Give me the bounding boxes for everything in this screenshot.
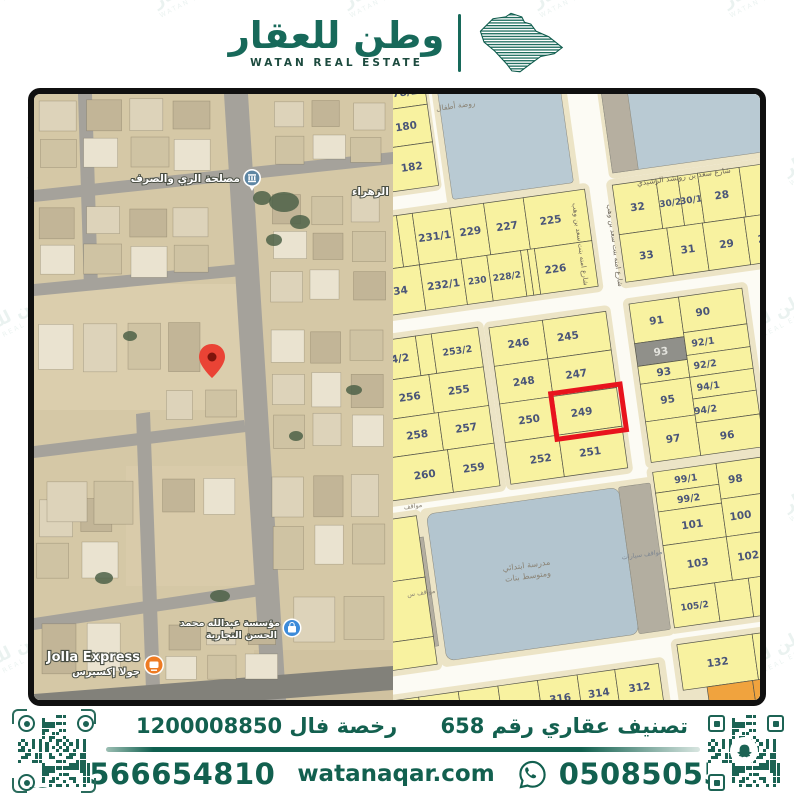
- parcel-plot: [715, 578, 754, 621]
- brand-english: WATAN REAL ESTATE: [229, 57, 445, 69]
- plot-number: 98: [727, 472, 743, 486]
- plot-number: 27: [757, 232, 760, 246]
- plot-number: 96: [719, 429, 735, 443]
- plot-number: 97: [665, 432, 681, 446]
- website: watanaqar.com: [297, 761, 494, 787]
- district-label: الزهراء: [352, 186, 389, 198]
- poi-jolla-en: Jolla Express: [46, 650, 141, 665]
- qr-code: [18, 715, 90, 787]
- maps-frame: مصلحة الري والصرف الزهراء مؤسسة عبدالله …: [28, 88, 766, 706]
- plot-number: 314: [587, 686, 610, 700]
- saudi-map-icon: [475, 11, 565, 75]
- footer: تصنيف عقاري رقم 658 رخصة فال 1200008850 …: [0, 706, 794, 793]
- restaurant-icon: [144, 655, 164, 675]
- plot-number: 90: [695, 305, 711, 319]
- license-label: رخصة فال 1200008850: [136, 714, 397, 738]
- flyer-page: وطن للعقارWATAN REAL ESTATEوطن للعقارWAT…: [0, 0, 794, 793]
- brand-arabic: وطن للعقار: [229, 17, 445, 56]
- qr-code: [708, 715, 780, 787]
- phone-left: 0566654810: [69, 757, 276, 791]
- whatsapp-icon: [517, 759, 548, 790]
- shopping-bag-icon: [283, 619, 302, 638]
- brand-text: وطن للعقار WATAN REAL ESTATE: [229, 17, 445, 69]
- watermark-text: وطن للعقارWATAN REAL ESTATE: [779, 453, 794, 524]
- parcel-map: 178/21801823231/1229227225234232/1230228…: [393, 94, 760, 700]
- brand-divider: [458, 14, 461, 72]
- poi-establishment-line1: مؤسسة عبدالله محمد: [180, 618, 280, 629]
- footer-divider: [106, 747, 700, 752]
- plot-number: 29: [719, 237, 735, 251]
- plot-number: 95: [660, 393, 676, 407]
- poi-jolla-ar: جولا إكسبرس: [72, 667, 140, 678]
- snapchat-ghost-icon: [730, 737, 758, 765]
- plot-number: 93: [653, 345, 669, 359]
- watermark-text: وطن للعقارWATAN REAL ESTATE: [779, 117, 794, 188]
- plot-number: 31: [680, 243, 696, 257]
- plot-number: 91: [649, 314, 665, 328]
- plot-number: 32: [630, 200, 646, 214]
- contact-row: 0566654810 watanaqar.com 0508505505: [96, 754, 696, 793]
- plot-number: 28: [714, 189, 730, 203]
- plot-number: 33: [638, 249, 654, 263]
- classification-label: تصنيف عقاري رقم 658: [441, 714, 689, 738]
- poi-establishment-line2: الحسن التجارية: [206, 630, 277, 641]
- satellite-map: مصلحة الري والصرف الزهراء مؤسسة عبدالله …: [34, 94, 393, 700]
- header: وطن للعقار WATAN REAL ESTATE: [0, 0, 794, 86]
- plot-number: 93: [656, 365, 672, 379]
- poi-irrigation-label: مصلحة الري والصرف: [131, 173, 240, 185]
